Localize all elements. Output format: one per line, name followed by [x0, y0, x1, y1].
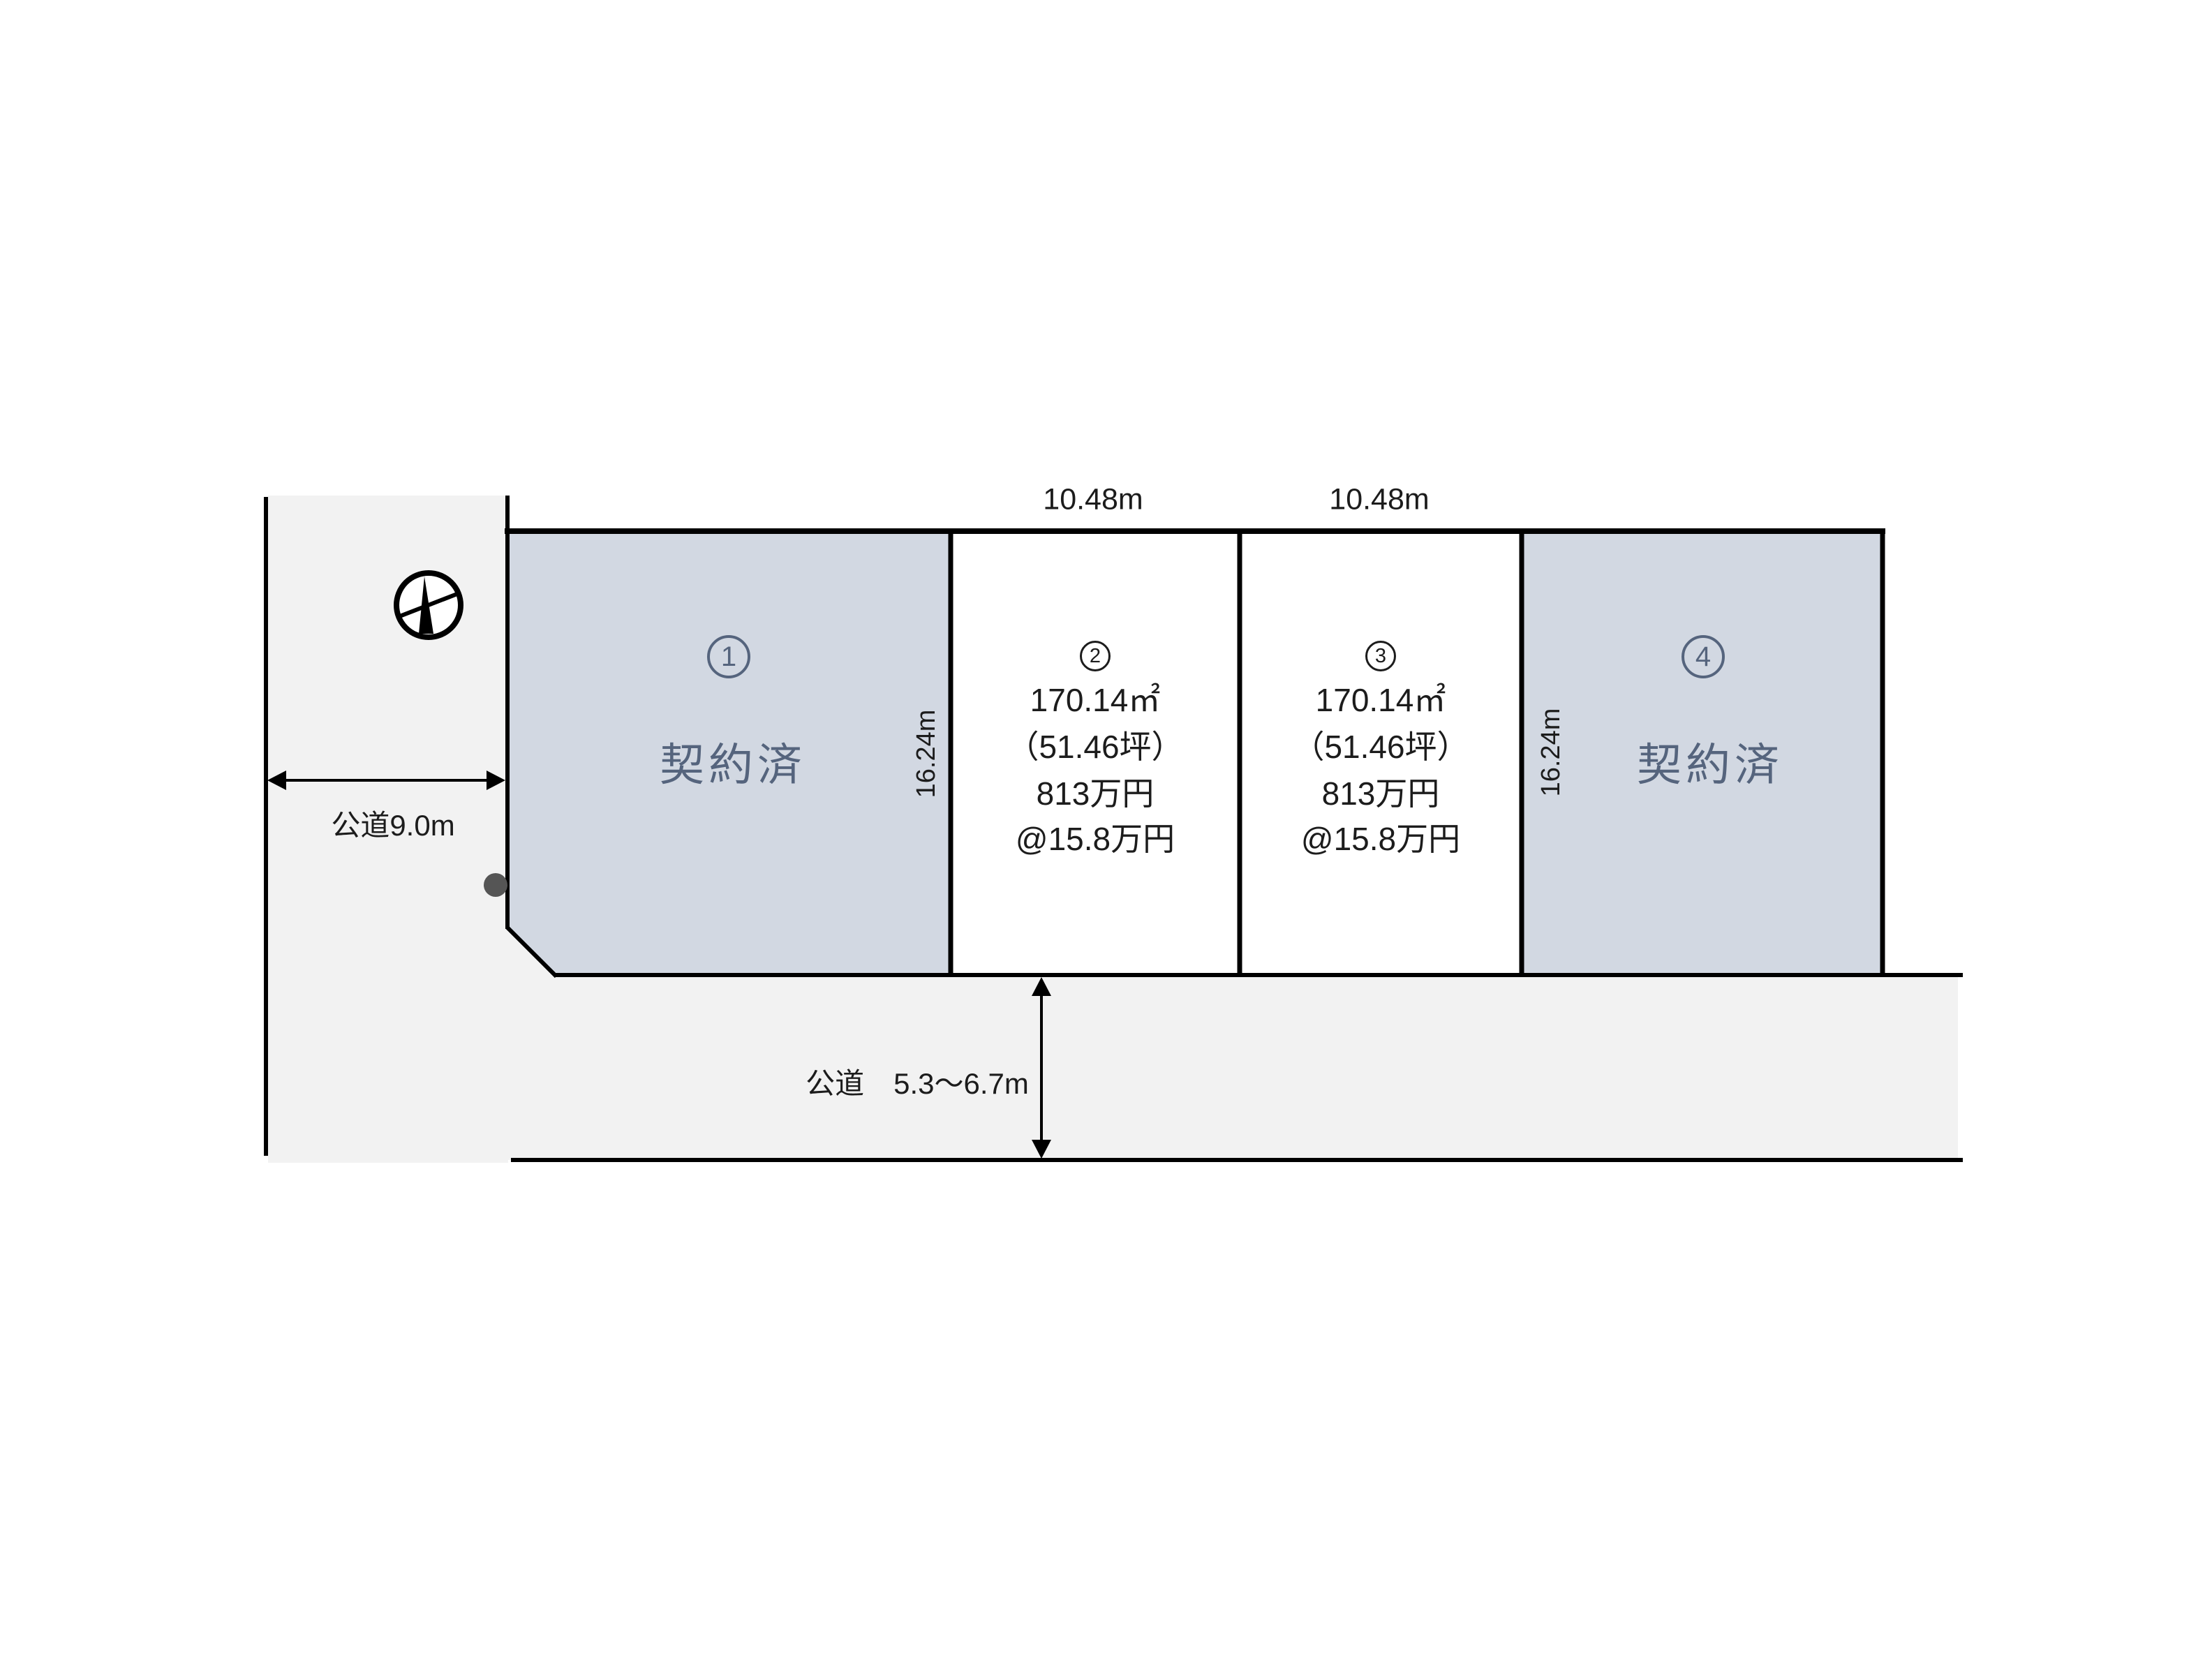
plot-3-number-badge: 3 — [1365, 641, 1396, 671]
road-bottom-area — [507, 975, 1958, 1160]
dim-label-plot3-width: 10.48m — [1329, 485, 1429, 515]
plot-2-area-tsubo-label: （51.46坪） — [1007, 731, 1183, 763]
dim-label-depth-right: 16.24m — [1538, 708, 1564, 797]
plot-2-area-label: 170.14㎡ — [1030, 684, 1161, 716]
plot-2-price-label: 813万円 — [1037, 778, 1155, 810]
plot-3-price-label: 813万円 — [1322, 778, 1440, 810]
plot-4-number-badge: 4 — [1682, 635, 1725, 678]
plot-4-status-label: 契約済 — [1637, 743, 1783, 787]
dim-label-depth-left: 16.24m — [913, 710, 940, 798]
land-plot-diagram: 10.48m 10.48m 16.24m 16.24m 公道9.0m 公道 5.… — [0, 0, 2212, 1659]
plot-3-unit-price-label: @15.8万円 — [1301, 823, 1460, 855]
boundary-point-dot — [484, 873, 507, 897]
plot-2-number-badge: 2 — [1080, 641, 1111, 671]
dim-label-plot2-width: 10.48m — [1043, 485, 1143, 515]
plot-1-status-label: 契約済 — [660, 743, 806, 787]
plot-3-area-tsubo-label: （51.46坪） — [1292, 731, 1469, 763]
north-compass-icon — [396, 573, 461, 637]
plot-2-unit-price-label: @15.8万円 — [1016, 823, 1175, 855]
road-left-label: 公道9.0m — [331, 811, 454, 840]
road-bottom-label: 公道 5.3〜6.7m — [806, 1069, 1029, 1099]
plot-1-number-badge: 1 — [707, 635, 750, 678]
plot-3-area-label: 170.14㎡ — [1316, 684, 1446, 716]
